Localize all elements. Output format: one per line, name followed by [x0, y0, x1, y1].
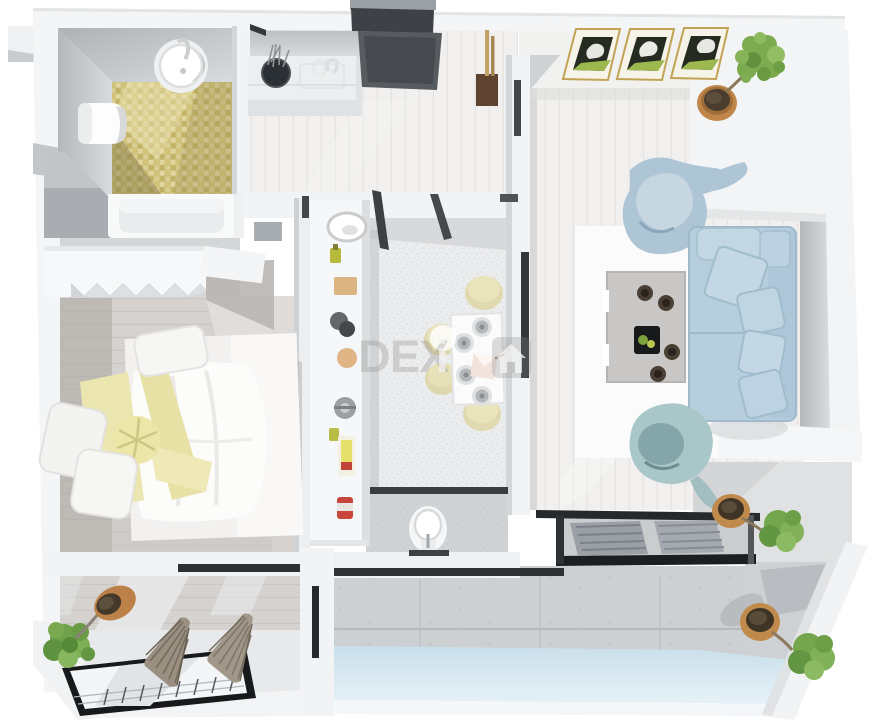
svg-text:i: i	[436, 331, 449, 382]
